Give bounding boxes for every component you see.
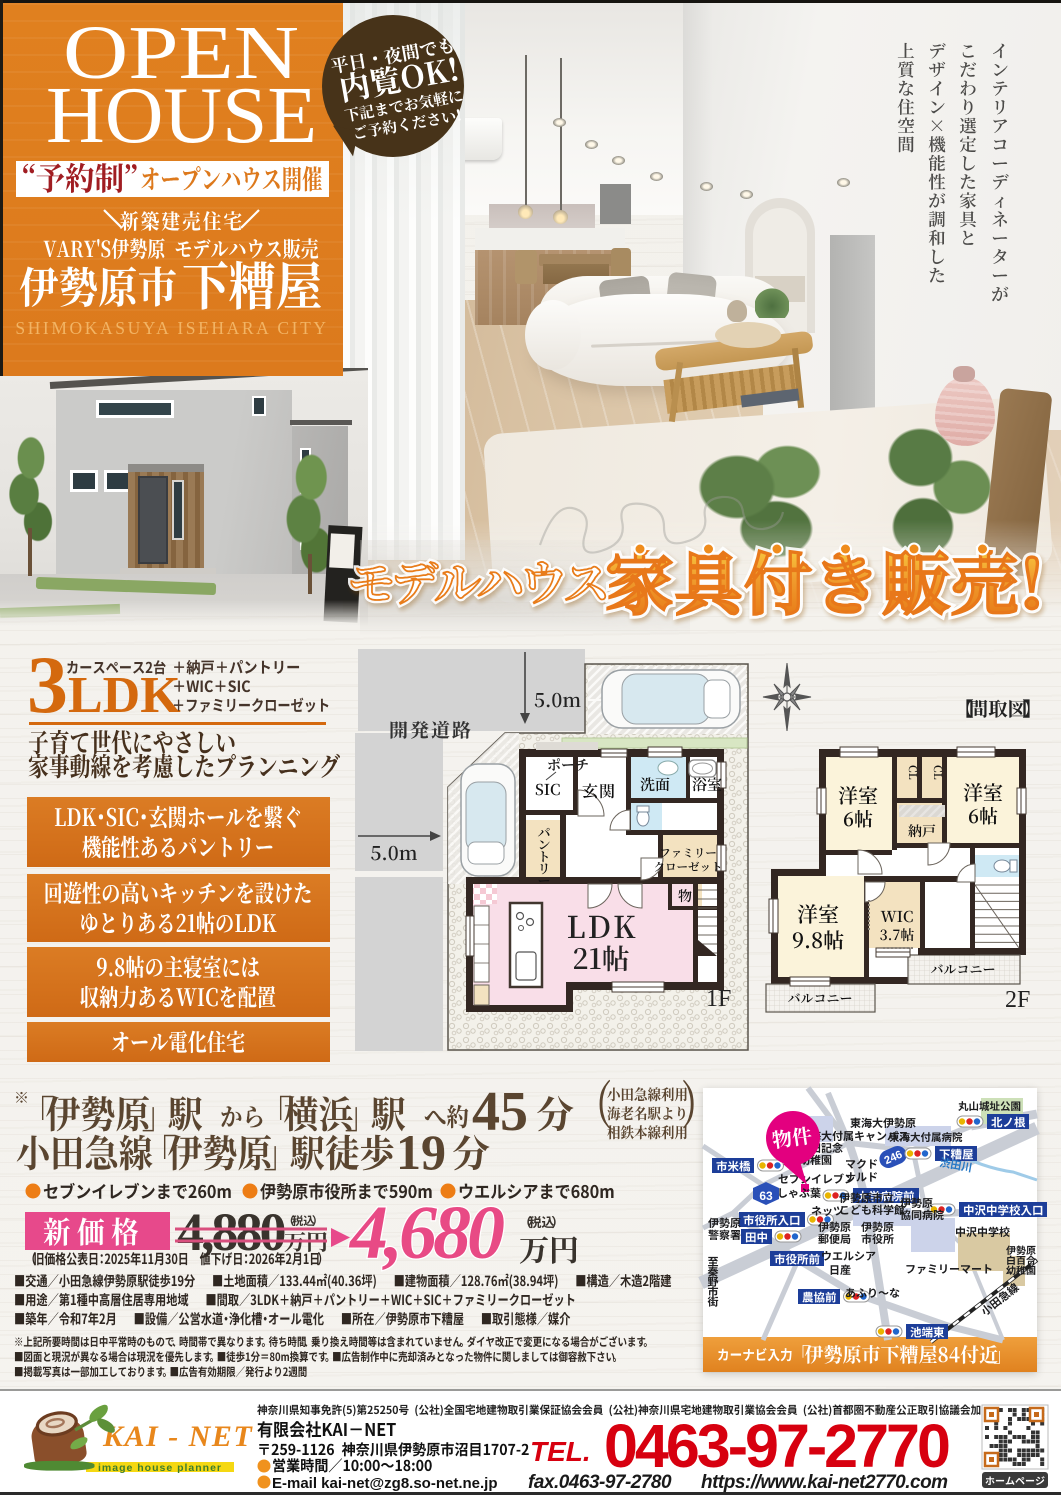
svg-text:4,680: 4,680	[348, 1191, 504, 1275]
svg-text:LDK: LDK	[68, 667, 181, 724]
svg-text:19: 19	[396, 1124, 446, 1180]
svg-text:HOUSE: HOUSE	[46, 70, 317, 160]
svg-text:4,880: 4,880	[177, 1202, 285, 1262]
svg-text:TEL.: TEL.	[530, 1436, 591, 1467]
svg-text:image house planner: image house planner	[98, 1462, 222, 1474]
svg-text:45: 45	[472, 1081, 528, 1143]
svg-text:SHIMOKASUYA ISEHARA CITY: SHIMOKASUYA ISEHARA CITY	[15, 318, 328, 338]
svg-text:3: 3	[27, 639, 68, 730]
svg-text:1F: 1F	[706, 986, 731, 1012]
svg-text:https://www.kai-net2770.com: https://www.kai-net2770.com	[701, 1472, 948, 1493]
svg-text:2F: 2F	[1005, 987, 1030, 1013]
svg-text:63: 63	[759, 1189, 773, 1203]
svg-text:E-mail kai-net@zg8.so-net.ne.j: E-mail kai-net@zg8.so-net.ne.jp	[272, 1475, 498, 1492]
svg-text:fax.0463-97-2780: fax.0463-97-2780	[528, 1472, 672, 1493]
svg-text:KAI - NET: KAI - NET	[102, 1420, 253, 1453]
svg-text:0463-97-2770: 0463-97-2770	[604, 1412, 949, 1480]
